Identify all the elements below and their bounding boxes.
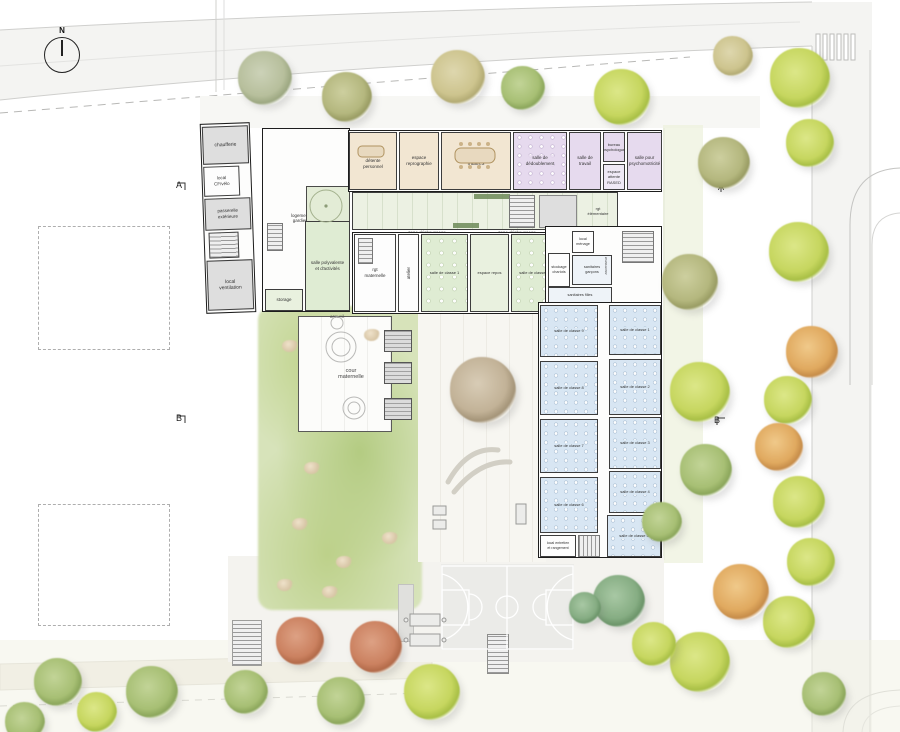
tree <box>632 622 676 666</box>
tree <box>770 48 830 108</box>
tree <box>680 444 732 496</box>
tree <box>77 692 117 732</box>
tree <box>431 50 485 104</box>
tree <box>713 564 769 620</box>
compass-needle <box>61 40 63 56</box>
tree <box>773 476 825 528</box>
tree <box>755 423 803 471</box>
tree <box>698 137 750 189</box>
tree <box>569 592 601 624</box>
site-plan: cour maternelle chaufferie local CF/vélo… <box>0 0 900 732</box>
tree <box>670 362 730 422</box>
tree <box>769 222 829 282</box>
tree <box>802 672 846 716</box>
tree <box>764 376 812 424</box>
tree <box>126 666 178 718</box>
section-marker-b-left: B <box>176 413 182 423</box>
tree <box>593 575 645 627</box>
tree <box>450 357 516 423</box>
tree <box>786 326 838 378</box>
tree <box>713 36 753 76</box>
tree <box>594 69 650 125</box>
north-label: N <box>40 26 84 35</box>
tree <box>350 621 402 673</box>
tree <box>238 51 292 105</box>
tree <box>786 119 834 167</box>
tree <box>642 502 682 542</box>
tree <box>670 632 730 692</box>
tree <box>404 664 460 720</box>
tree <box>224 670 268 714</box>
tree <box>34 658 82 706</box>
tree <box>322 72 372 122</box>
compass: N <box>40 26 84 88</box>
tree <box>763 596 815 648</box>
section-marker-a-left: A <box>176 180 182 190</box>
tree <box>662 254 718 310</box>
tree <box>501 66 545 110</box>
compass-circle <box>44 37 80 73</box>
tree <box>317 677 365 725</box>
tree <box>276 617 324 665</box>
tree <box>787 538 835 586</box>
